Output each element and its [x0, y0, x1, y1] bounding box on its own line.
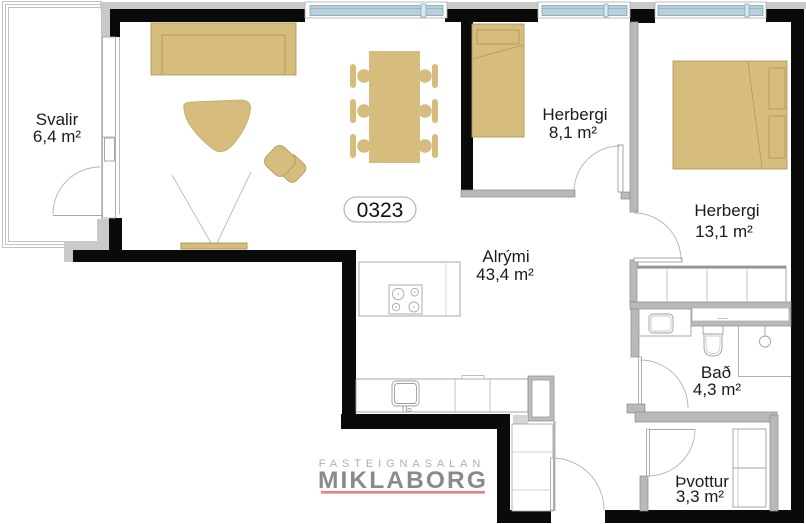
svg-text:0323: 0323 [357, 199, 404, 222]
svg-text:13,1 m²: 13,1 m² [695, 222, 753, 241]
svg-text:Herbergi: Herbergi [694, 201, 759, 220]
svg-text:8,1 m²: 8,1 m² [549, 123, 598, 142]
svg-text:Alrými: Alrými [482, 247, 529, 266]
svg-text:4,3 m²: 4,3 m² [693, 380, 742, 399]
svg-text:Herbergi: Herbergi [542, 105, 607, 124]
svg-text:6,4 m²: 6,4 m² [33, 127, 82, 146]
svg-text:MIKLABORG: MIKLABORG [318, 467, 488, 494]
svg-text:43,4 m²: 43,4 m² [476, 265, 534, 284]
svg-text:3,3 m²: 3,3 m² [676, 487, 725, 506]
